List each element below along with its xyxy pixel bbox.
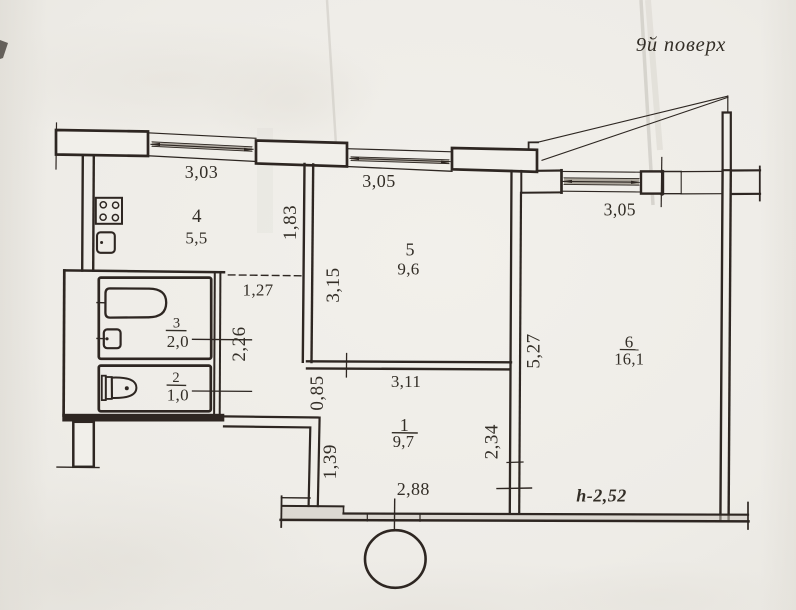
svg-text:9,6: 9,6 [397,260,419,279]
svg-text:2: 2 [172,370,179,386]
svg-text:3,05: 3,05 [604,200,636,220]
svg-text:3,11: 3,11 [391,372,421,391]
svg-text:1,83: 1,83 [280,205,301,240]
svg-text:3,03: 3,03 [185,162,219,182]
svg-text:h-2,52: h-2,52 [576,486,627,506]
svg-text:2,26: 2,26 [229,326,250,361]
svg-text:5,27: 5,27 [524,333,545,368]
svg-text:1,0: 1,0 [167,386,189,405]
svg-text:3,15: 3,15 [323,267,344,302]
svg-text:1,39: 1,39 [320,444,341,479]
svg-text:16,1: 16,1 [614,349,644,368]
svg-text:2,0: 2,0 [167,332,189,351]
svg-text:9,7: 9,7 [393,432,415,451]
svg-text:3: 3 [173,316,180,332]
svg-text:2,88: 2,88 [397,479,430,499]
svg-text:2,34: 2,34 [482,424,503,459]
svg-text:0,85: 0,85 [307,375,328,410]
svg-text:5: 5 [406,240,415,260]
svg-text:5,5: 5,5 [185,229,207,248]
svg-text:3,05: 3,05 [362,171,396,191]
svg-text:4: 4 [192,206,202,227]
svg-text:1,27: 1,27 [243,281,274,300]
svg-text:9й поверх: 9й поверх [636,34,726,56]
